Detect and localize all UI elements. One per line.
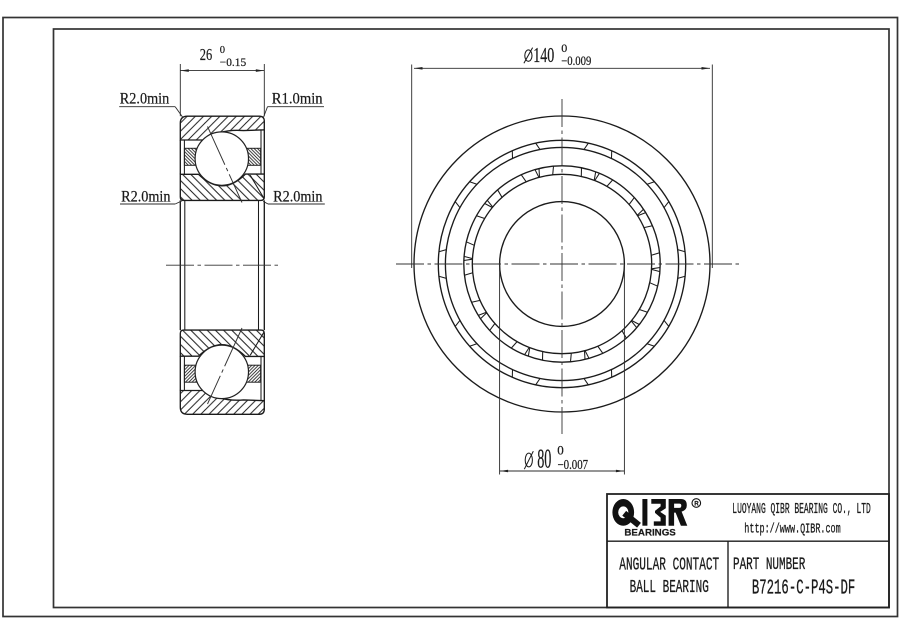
svg-text:BEARINGS: BEARINGS	[624, 528, 676, 539]
svg-text:−0.15: −0.15	[220, 55, 246, 69]
svg-text:140: 140	[533, 43, 554, 67]
svg-text:ANGULAR CONTACT: ANGULAR CONTACT	[619, 555, 719, 576]
svg-text:PART NUMBER: PART NUMBER	[733, 555, 806, 575]
svg-text:R1.0min: R1.0min	[272, 91, 323, 108]
svg-text:0: 0	[561, 41, 567, 55]
svg-text:R: R	[694, 501, 699, 508]
svg-text:LUOYANG QIBR BEARING CO., LTD: LUOYANG QIBR BEARING CO., LTD	[732, 502, 871, 518]
svg-text:http://www.QIBR.com: http://www.QIBR.com	[744, 521, 840, 537]
svg-text:26: 26	[200, 45, 212, 64]
svg-text:BALL BEARING: BALL BEARING	[630, 577, 709, 598]
svg-text:−0.007: −0.007	[558, 457, 589, 472]
svg-text:R2.0min: R2.0min	[121, 188, 170, 205]
svg-text:B7216-C-P4S-DF: B7216-C-P4S-DF	[752, 578, 855, 601]
svg-text:−0.009: −0.009	[561, 54, 591, 68]
svg-text:0: 0	[557, 443, 564, 458]
svg-text:80: 80	[537, 444, 551, 474]
svg-text:R2.0min: R2.0min	[273, 188, 322, 205]
svg-text:R2.0min: R2.0min	[120, 91, 169, 108]
